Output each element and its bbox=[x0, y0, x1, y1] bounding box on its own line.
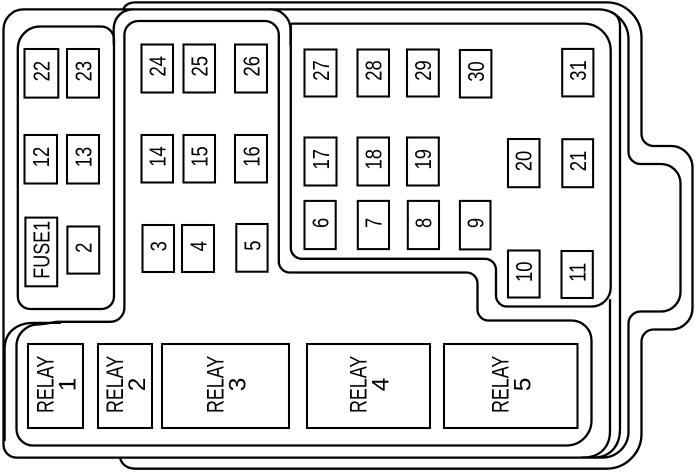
svg-text:5: 5 bbox=[510, 378, 537, 392]
svg-text:10: 10 bbox=[512, 262, 537, 282]
svg-text:29: 29 bbox=[411, 60, 436, 80]
svg-text:14: 14 bbox=[146, 146, 171, 166]
svg-text:9: 9 bbox=[464, 218, 489, 228]
svg-text:27: 27 bbox=[309, 60, 334, 80]
svg-text:21: 21 bbox=[566, 151, 591, 171]
svg-text:19: 19 bbox=[411, 149, 436, 169]
svg-text:22: 22 bbox=[30, 61, 55, 81]
svg-text:2: 2 bbox=[72, 243, 97, 253]
svg-text:28: 28 bbox=[362, 60, 387, 80]
svg-text:15: 15 bbox=[188, 146, 213, 166]
svg-text:8: 8 bbox=[412, 218, 437, 228]
svg-text:3: 3 bbox=[224, 378, 251, 392]
svg-text:3: 3 bbox=[147, 241, 172, 251]
svg-text:2: 2 bbox=[124, 378, 151, 392]
svg-text:11: 11 bbox=[566, 263, 591, 282]
svg-text:30: 30 bbox=[464, 61, 489, 81]
svg-text:4: 4 bbox=[367, 378, 394, 392]
svg-text:FUSE1: FUSE1 bbox=[30, 221, 56, 279]
svg-text:25: 25 bbox=[188, 56, 213, 76]
svg-text:12: 12 bbox=[29, 147, 54, 167]
svg-text:31: 31 bbox=[566, 60, 591, 80]
svg-text:23: 23 bbox=[71, 61, 96, 81]
svg-text:18: 18 bbox=[362, 149, 387, 169]
svg-text:17: 17 bbox=[309, 149, 334, 169]
svg-text:4: 4 bbox=[186, 241, 211, 251]
svg-text:1: 1 bbox=[54, 378, 81, 392]
svg-text:16: 16 bbox=[239, 146, 264, 166]
svg-text:26: 26 bbox=[239, 56, 264, 76]
svg-text:24: 24 bbox=[146, 56, 171, 76]
svg-text:13: 13 bbox=[71, 147, 96, 167]
svg-text:6: 6 bbox=[309, 218, 334, 228]
svg-text:7: 7 bbox=[362, 218, 387, 228]
svg-text:5: 5 bbox=[240, 240, 265, 250]
svg-text:20: 20 bbox=[511, 151, 536, 171]
